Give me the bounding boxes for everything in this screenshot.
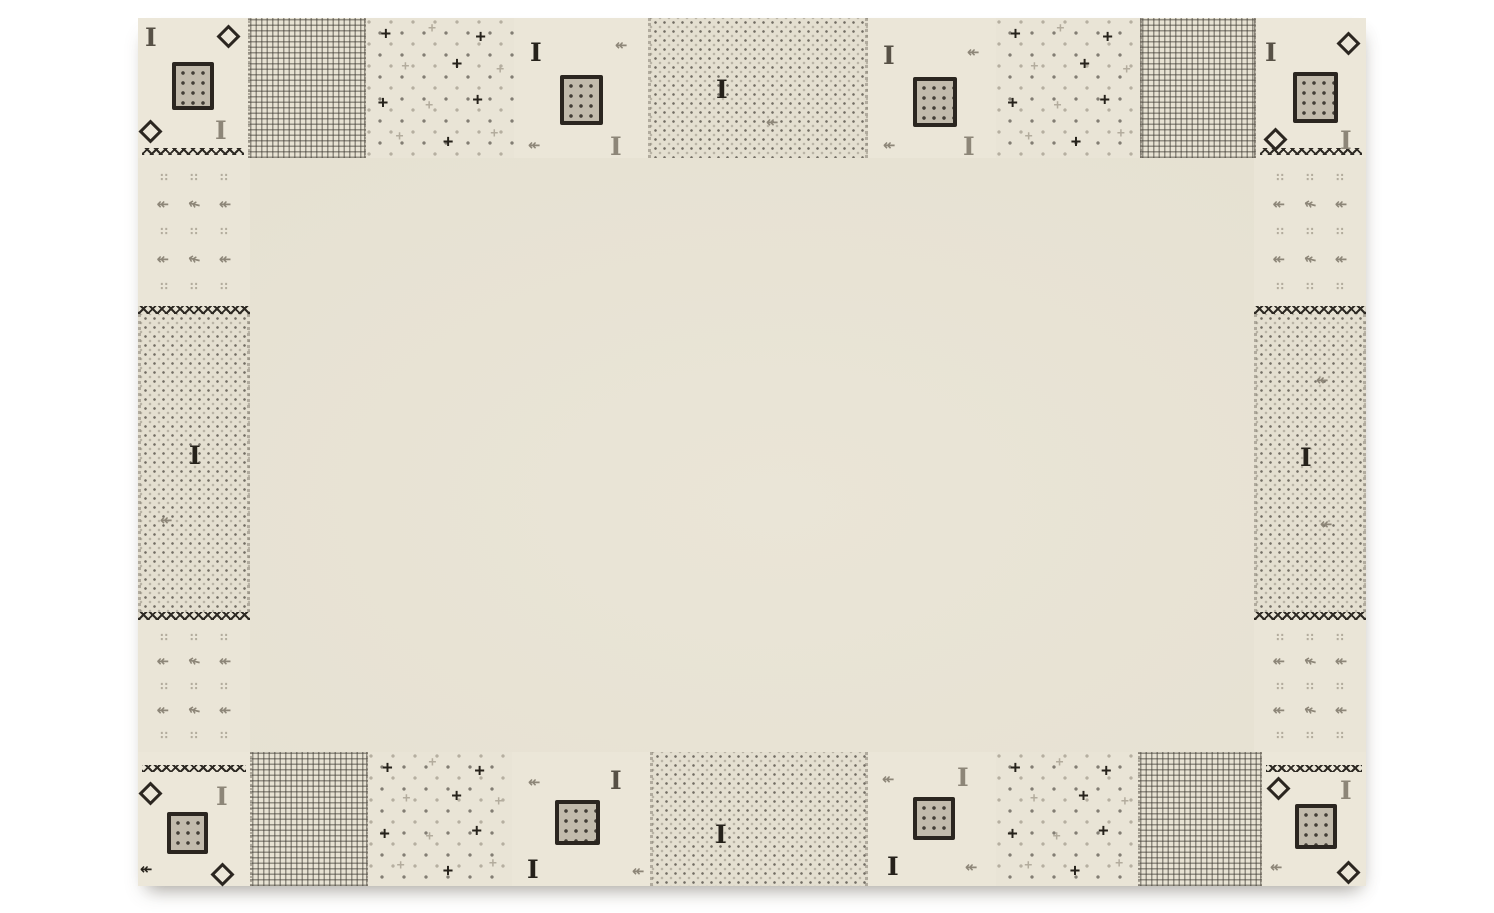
dots-motif: ∷ (1336, 172, 1344, 183)
arrow-row: ∷∷∷ (138, 730, 250, 741)
diamond-motif (210, 862, 234, 886)
arrow-motif: ↞ (1273, 654, 1286, 669)
dots-motif: ∷ (190, 632, 198, 643)
i-motif: I (145, 25, 157, 50)
arrow-row: ∷∷∷ (1254, 281, 1366, 292)
dots-motif: ∷ (190, 226, 198, 237)
dots-motif: ∷ (220, 730, 228, 741)
arrow-row: ↞↞↞ (138, 252, 250, 267)
arrow-row: ∷∷∷ (1254, 172, 1366, 183)
plus-motif: + (1115, 857, 1123, 870)
diamond-motif (216, 24, 240, 48)
arrow-row: ↞↞↞ (1254, 654, 1366, 669)
plus-motif: + (397, 859, 405, 872)
border-section-bottom-plain-2: ↞II↞ (868, 752, 996, 886)
plus-motif: + (1121, 795, 1129, 808)
dots-motif: ∷ (220, 172, 228, 183)
plus-motif: + (452, 56, 462, 73)
arrow-motif: ↞ (186, 702, 202, 720)
dots-motif: ∷ (1276, 226, 1284, 237)
plus-motif: + (1117, 127, 1125, 140)
i-motif: I (887, 854, 899, 879)
border-section-corner-tr: II (1256, 18, 1366, 158)
plus-motif: + (378, 95, 388, 112)
dots-motif: ∷ (220, 281, 228, 292)
plus-motif: + (1080, 56, 1090, 73)
arrow-row: ↞↞↞ (1254, 197, 1366, 212)
arrow-motif: ↞ (219, 703, 232, 718)
dots-motif: ∷ (1336, 681, 1344, 692)
plus-motif: + (1123, 63, 1131, 76)
arrow-motif: ↞ (157, 654, 170, 669)
dots-motif: ∷ (160, 226, 168, 237)
arrow-motif: ↞ (1270, 860, 1283, 875)
square-motif (913, 797, 955, 840)
arrow-motif: ↞ (528, 775, 541, 790)
border-section-left-speckle: I↞ (138, 314, 250, 612)
border-section-corner-tl: II (138, 18, 248, 158)
arrow-row: ↞↞↞ (1254, 252, 1366, 267)
plus-motif: + (402, 60, 410, 73)
border-section-bottom-grid-1 (250, 752, 368, 886)
plus-motif: + (1010, 26, 1020, 43)
arrow-motif: ↞ (528, 138, 541, 153)
plus-motif: + (475, 763, 485, 780)
i-motif: I (189, 443, 201, 468)
plus-motif: + (1025, 130, 1033, 143)
dots-motif: ∷ (190, 730, 198, 741)
diamond-motif (1266, 776, 1290, 800)
plus-motif: + (490, 127, 498, 140)
i-motif: I (215, 118, 227, 143)
plus-motif: + (380, 826, 390, 843)
border-section-bottom-speckle: I (650, 752, 868, 886)
i-motif: I (216, 784, 228, 809)
arrow-motif: ↞ (186, 196, 202, 214)
diamond-motif (1336, 860, 1360, 884)
arrow-motif: ↞ (140, 862, 153, 877)
plus-motif: + (1078, 788, 1088, 805)
arrow-row: ↞↞↞ (1254, 703, 1366, 718)
border-section-top-grid-2 (1140, 18, 1256, 158)
photo-background: II++++++++++++I↞↞II↞I↞↞I++++++++++++II∷∷… (0, 0, 1494, 913)
zigzag-divider (138, 306, 250, 314)
dots-motif: ∷ (1306, 681, 1314, 692)
dots-motif: ∷ (1306, 172, 1314, 183)
i-motif: I (527, 857, 539, 882)
arrow-motif: ↞ (1302, 250, 1318, 268)
plus-motif: + (443, 134, 453, 151)
arrow-motif: ↞ (186, 653, 202, 671)
border-section-bottom-grid-2 (1138, 752, 1262, 886)
dots-motif: ∷ (1276, 681, 1284, 692)
arrow-motif: ↞ (160, 513, 173, 528)
plus-motif: + (382, 760, 392, 777)
plus-motif: + (428, 756, 436, 769)
square-motif (913, 77, 957, 127)
plus-motif: + (1008, 95, 1018, 112)
dots-motif: ∷ (220, 226, 228, 237)
plus-motif: + (452, 788, 462, 805)
dots-motif: ∷ (160, 632, 168, 643)
arrow-motif: ↞ (219, 252, 232, 267)
dots-motif: ∷ (160, 281, 168, 292)
arrow-row: ∷∷∷ (1254, 681, 1366, 692)
dots-motif: ∷ (1276, 281, 1284, 292)
arrow-row: ∷∷∷ (138, 632, 250, 643)
i-motif: I (883, 43, 895, 68)
plus-motif: + (473, 92, 483, 109)
plus-motif: + (1054, 99, 1062, 112)
dots-motif: ∷ (160, 172, 168, 183)
arrow-motif: ↞ (157, 252, 170, 267)
border-section-right-speckle: ↞I↞ (1254, 314, 1366, 612)
arrow-motif: ↞ (157, 197, 170, 212)
border-section-bottom-plain-1: ↞II↞ (512, 752, 650, 886)
arrow-row: ↞↞↞ (138, 197, 250, 212)
border-section-top-grid-1 (248, 18, 366, 158)
arrow-motif: ↞ (967, 45, 980, 60)
plus-motif: + (1031, 60, 1039, 73)
arrow-motif: ↞ (1302, 702, 1318, 720)
arrow-row: ↞↞↞ (138, 703, 250, 718)
i-motif: I (530, 40, 542, 65)
dots-motif: ∷ (1336, 281, 1344, 292)
plus-motif: + (403, 792, 411, 805)
i-motif: I (1340, 778, 1352, 803)
border-section-corner-bl: I↞ (138, 752, 250, 886)
plus-motif: + (495, 795, 503, 808)
dots-motif: ∷ (1306, 632, 1314, 643)
arrow-row: ∷∷∷ (138, 281, 250, 292)
dots-motif: ∷ (160, 730, 168, 741)
border-section-left-arrows-2: ∷∷∷↞↞↞∷∷∷↞↞↞∷∷∷ (138, 620, 250, 752)
arrow-motif: ↞ (1320, 517, 1333, 532)
square-motif (167, 812, 208, 854)
dots-motif: ∷ (1336, 730, 1344, 741)
dots-motif: ∷ (1336, 632, 1344, 643)
arrow-motif: ↞ (882, 772, 895, 787)
arrow-motif: ↞ (1302, 196, 1318, 214)
border-section-top-plain-2: I↞↞I (868, 18, 996, 158)
i-motif: I (1300, 445, 1312, 470)
i-motif: I (610, 768, 622, 793)
dots-motif: ∷ (190, 681, 198, 692)
dots-motif: ∷ (1306, 730, 1314, 741)
arrow-row: ↞↞↞ (138, 654, 250, 669)
dots-motif: ∷ (1276, 730, 1284, 741)
arrow-motif: ↞ (219, 654, 232, 669)
plus-motif: + (1056, 756, 1064, 769)
zigzag-divider (1254, 612, 1366, 620)
arrow-motif: ↞ (1302, 653, 1318, 671)
diamond-motif (138, 119, 162, 143)
diamond-motif (138, 781, 162, 805)
plus-motif: + (1030, 792, 1038, 805)
arrow-row: ∷∷∷ (1254, 226, 1366, 237)
border-section-right-arrows-2: ∷∷∷↞↞↞∷∷∷↞↞↞∷∷∷ (1254, 620, 1366, 752)
i-motif: I (1340, 128, 1352, 153)
dots-motif: ∷ (1336, 226, 1344, 237)
rug-photo: II++++++++++++I↞↞II↞I↞↞I++++++++++++II∷∷… (138, 18, 1366, 886)
zigzag-divider (142, 765, 245, 772)
dots-motif: ∷ (1306, 281, 1314, 292)
plus-motif: + (1007, 826, 1017, 843)
i-motif: I (963, 134, 975, 159)
dots-motif: ∷ (160, 681, 168, 692)
arrow-motif: ↞ (883, 138, 896, 153)
plus-motif: + (1056, 22, 1064, 35)
i-motif: I (715, 822, 727, 847)
zigzag-divider (138, 612, 250, 620)
arrow-row: ∷∷∷ (1254, 730, 1366, 741)
plus-motif: + (1053, 830, 1061, 843)
dots-motif: ∷ (1276, 172, 1284, 183)
arrow-row: ∷∷∷ (138, 172, 250, 183)
border-section-bottom-dotsplus-2: ++++++++++++ (996, 752, 1138, 886)
border-section-right-arrows-1: ∷∷∷↞↞↞∷∷∷↞↞↞∷∷∷ (1254, 158, 1366, 306)
border-section-top-dotsplus-1: ++++++++++++ (366, 18, 514, 158)
arrow-motif: ↞ (1273, 703, 1286, 718)
plus-motif: + (425, 99, 433, 112)
square-motif (1295, 804, 1337, 849)
i-motif: I (716, 77, 728, 102)
arrow-motif: ↞ (186, 250, 202, 268)
plus-motif: + (1100, 92, 1110, 109)
arrow-motif: ↞ (1335, 654, 1348, 669)
plus-motif: + (1071, 134, 1081, 151)
arrow-motif: ↞ (1335, 703, 1348, 718)
arrow-motif: ↞ (965, 860, 978, 875)
i-motif: I (1265, 40, 1277, 65)
i-motif: I (957, 765, 969, 790)
square-motif (560, 75, 603, 125)
plus-motif: + (1103, 29, 1113, 46)
arrow-motif: ↞ (615, 38, 628, 53)
dots-motif: ∷ (1276, 632, 1284, 643)
arrow-motif: ↞ (219, 197, 232, 212)
dots-motif: ∷ (190, 281, 198, 292)
plus-motif: + (1010, 760, 1020, 777)
i-motif: I (610, 134, 622, 159)
plus-motif: + (396, 130, 404, 143)
zigzag-divider (1254, 306, 1366, 314)
plus-motif: + (472, 823, 482, 840)
border-section-bottom-dotsplus-1: ++++++++++++ (368, 752, 512, 886)
plus-motif: + (443, 863, 453, 880)
zigzag-divider (1266, 765, 1362, 772)
dots-motif: ∷ (220, 632, 228, 643)
dots-motif: ∷ (1306, 226, 1314, 237)
arrow-motif: ↞ (1335, 252, 1348, 267)
arrow-row: ∷∷∷ (138, 226, 250, 237)
dots-motif: ∷ (220, 681, 228, 692)
arrow-motif: ↞ (1273, 252, 1286, 267)
arrow-motif: ↞ (766, 115, 779, 130)
plus-motif: + (476, 29, 486, 46)
diamond-motif (1336, 31, 1360, 55)
dots-motif: ∷ (190, 172, 198, 183)
plus-motif: + (496, 63, 504, 76)
plus-motif: + (1024, 859, 1032, 872)
arrow-motif: ↞ (1273, 197, 1286, 212)
plus-motif: + (1070, 863, 1080, 880)
square-motif (555, 800, 600, 845)
plus-motif: + (426, 830, 434, 843)
border-section-top-plain-1: I↞↞I (514, 18, 648, 158)
plus-motif: + (1098, 823, 1108, 840)
border-section-top-dotsplus-2: ++++++++++++ (996, 18, 1140, 158)
arrow-motif: ↞ (632, 864, 645, 879)
arrow-row: ∷∷∷ (1254, 632, 1366, 643)
plus-motif: + (489, 857, 497, 870)
zigzag-divider (142, 148, 243, 155)
border-section-corner-br: I↞ (1262, 752, 1366, 886)
border-section-left-arrows-1: ∷∷∷↞↞↞∷∷∷↞↞↞∷∷∷ (138, 158, 250, 306)
arrow-motif: ↞ (157, 703, 170, 718)
square-motif (172, 62, 214, 110)
plus-motif: + (1101, 763, 1111, 780)
plus-motif: + (428, 22, 436, 35)
plus-motif: + (381, 26, 391, 43)
arrow-motif: ↞ (1335, 197, 1348, 212)
border-section-top-speckle: I↞ (648, 18, 868, 158)
arrow-motif: ↞ (1316, 373, 1329, 388)
arrow-row: ∷∷∷ (138, 681, 250, 692)
square-motif (1293, 72, 1338, 123)
